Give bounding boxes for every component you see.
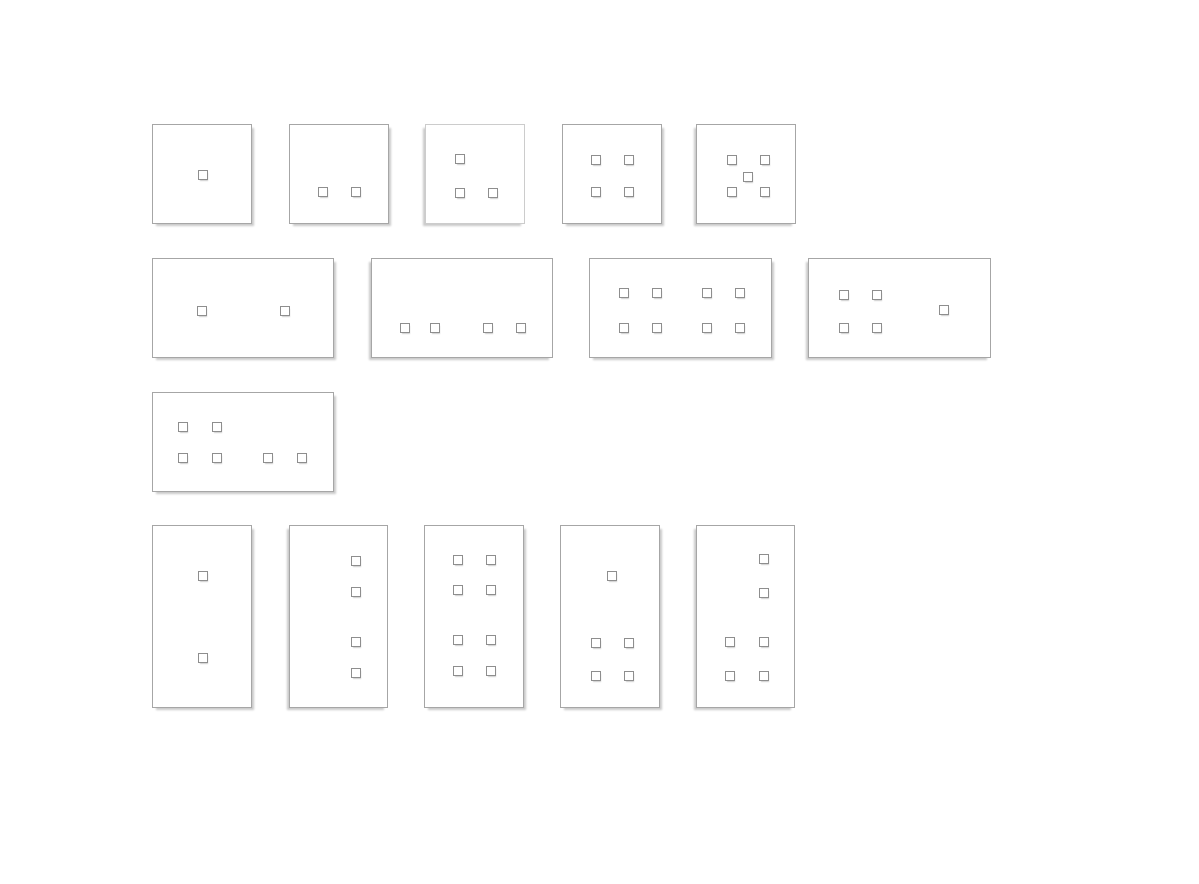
keypad-button-icon <box>198 170 208 180</box>
keypad-button-icon <box>455 154 465 164</box>
plate-square-2-buttons[interactable] <box>289 124 389 224</box>
keypad-button-icon <box>351 637 361 647</box>
keypad-button-icon <box>453 666 463 676</box>
keypad-button-icon <box>453 635 463 645</box>
keypad-button-icon <box>198 571 208 581</box>
plate-wide-8-buttons[interactable] <box>589 258 772 358</box>
keypad-button-icon <box>430 323 440 333</box>
keypad-button-icon <box>652 288 662 298</box>
keypad-button-icon <box>516 323 526 333</box>
plate-square-5-buttons[interactable] <box>696 124 796 224</box>
keypad-button-icon <box>702 288 712 298</box>
keypad-button-icon <box>212 422 222 432</box>
keypad-button-icon <box>483 323 493 333</box>
keypad-button-icon <box>318 187 328 197</box>
keypad-button-icon <box>198 653 208 663</box>
plates-canvas <box>0 0 1199 884</box>
plate-tall-5-buttons[interactable] <box>560 525 660 708</box>
keypad-button-icon <box>624 638 634 648</box>
keypad-button-icon <box>400 323 410 333</box>
keypad-button-icon <box>619 288 629 298</box>
keypad-button-icon <box>619 323 629 333</box>
keypad-button-icon <box>488 188 498 198</box>
keypad-button-icon <box>939 305 949 315</box>
keypad-button-icon <box>652 323 662 333</box>
plate-wide-2-buttons[interactable] <box>152 258 334 358</box>
keypad-button-icon <box>455 188 465 198</box>
keypad-button-icon <box>624 671 634 681</box>
keypad-button-icon <box>839 290 849 300</box>
keypad-button-icon <box>735 323 745 333</box>
keypad-button-icon <box>839 323 849 333</box>
keypad-button-icon <box>607 571 617 581</box>
plate-tall-6-buttons[interactable] <box>696 525 795 708</box>
keypad-button-icon <box>727 155 737 165</box>
plate-tall-4-buttons[interactable] <box>289 525 388 708</box>
keypad-button-icon <box>624 187 634 197</box>
keypad-button-icon <box>727 187 737 197</box>
keypad-button-icon <box>760 187 770 197</box>
keypad-button-icon <box>591 638 601 648</box>
keypad-button-icon <box>486 666 496 676</box>
keypad-button-icon <box>297 453 307 463</box>
plate-wide-6-buttons[interactable] <box>152 392 334 492</box>
plate-tall-2-buttons[interactable] <box>152 525 252 708</box>
keypad-button-icon <box>725 671 735 681</box>
plate-square-3-buttons[interactable] <box>425 124 525 224</box>
keypad-button-icon <box>351 587 361 597</box>
keypad-button-icon <box>486 585 496 595</box>
plate-tall-8-buttons[interactable] <box>424 525 524 708</box>
keypad-button-icon <box>351 187 361 197</box>
keypad-button-icon <box>453 555 463 565</box>
plate-wide-5-buttons[interactable] <box>808 258 991 358</box>
keypad-button-icon <box>872 323 882 333</box>
keypad-button-icon <box>591 671 601 681</box>
keypad-button-icon <box>702 323 712 333</box>
plate-square-4-buttons[interactable] <box>562 124 662 224</box>
keypad-button-icon <box>351 668 361 678</box>
keypad-button-icon <box>178 422 188 432</box>
keypad-button-icon <box>759 554 769 564</box>
keypad-button-icon <box>178 453 188 463</box>
keypad-button-icon <box>743 172 753 182</box>
keypad-button-icon <box>212 453 222 463</box>
keypad-button-icon <box>591 187 601 197</box>
keypad-button-icon <box>759 637 769 647</box>
keypad-button-icon <box>735 288 745 298</box>
keypad-button-icon <box>453 585 463 595</box>
keypad-button-icon <box>280 306 290 316</box>
plate-wide-4-buttons[interactable] <box>371 258 553 358</box>
keypad-button-icon <box>486 635 496 645</box>
keypad-button-icon <box>759 671 769 681</box>
plate-square-1-button[interactable] <box>152 124 252 224</box>
keypad-button-icon <box>760 155 770 165</box>
keypad-button-icon <box>591 155 601 165</box>
keypad-button-icon <box>263 453 273 463</box>
keypad-button-icon <box>872 290 882 300</box>
keypad-button-icon <box>486 555 496 565</box>
keypad-button-icon <box>725 637 735 647</box>
keypad-button-icon <box>624 155 634 165</box>
keypad-button-icon <box>197 306 207 316</box>
keypad-button-icon <box>759 588 769 598</box>
keypad-button-icon <box>351 556 361 566</box>
